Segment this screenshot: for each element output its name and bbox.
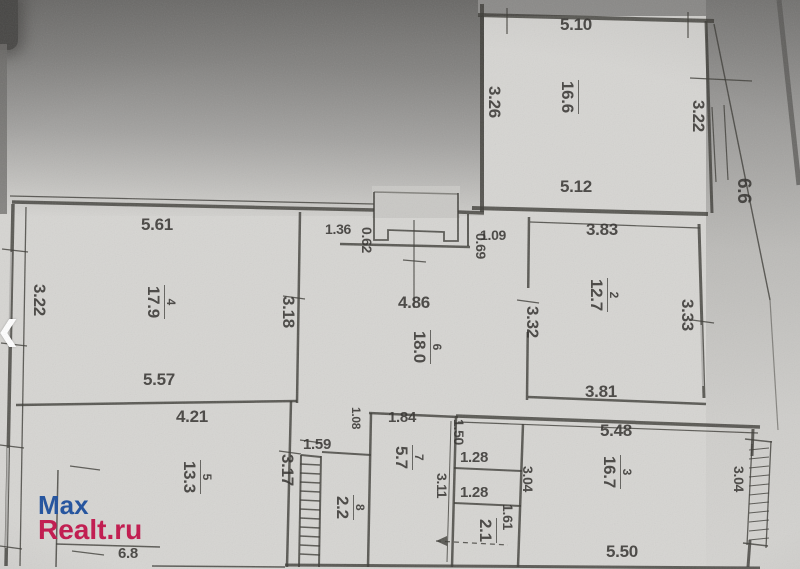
floorplan-photo: 5.10 5.12 5.61 1.36 1.09 3.83 4.86 5.57 … — [0, 0, 800, 569]
floorplan-walls — [0, 0, 800, 569]
watermark-line2: Realt.ru — [38, 516, 142, 544]
carousel-prev-icon[interactable]: ❮ — [0, 314, 19, 348]
watermark: Max Realt.ru — [38, 492, 142, 544]
